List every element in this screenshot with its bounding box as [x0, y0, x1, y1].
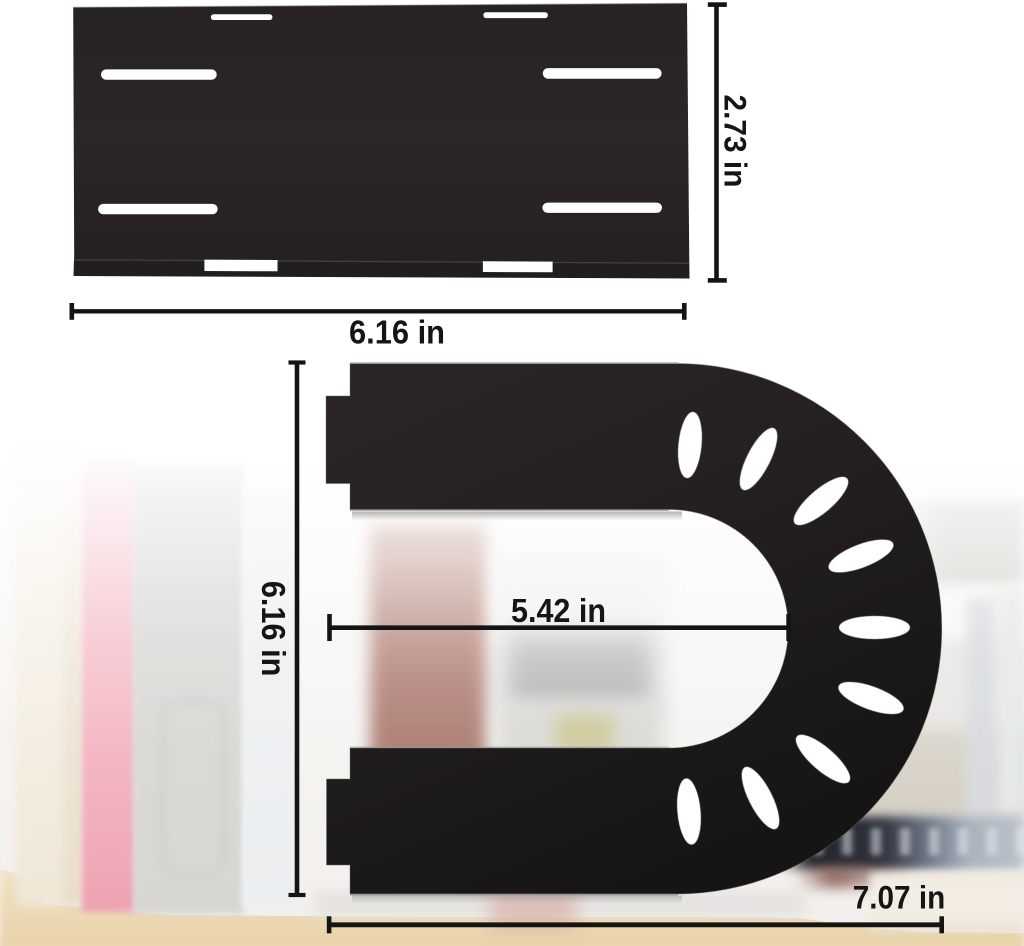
svg-text:5.42 in: 5.42 in [511, 593, 606, 630]
svg-text:6.16 in: 6.16 in [349, 315, 445, 352]
svg-text:2.73 in: 2.73 in [718, 95, 754, 188]
svg-text:7.07 in: 7.07 in [853, 879, 946, 915]
svg-text:6.16 in: 6.16 in [254, 581, 291, 677]
